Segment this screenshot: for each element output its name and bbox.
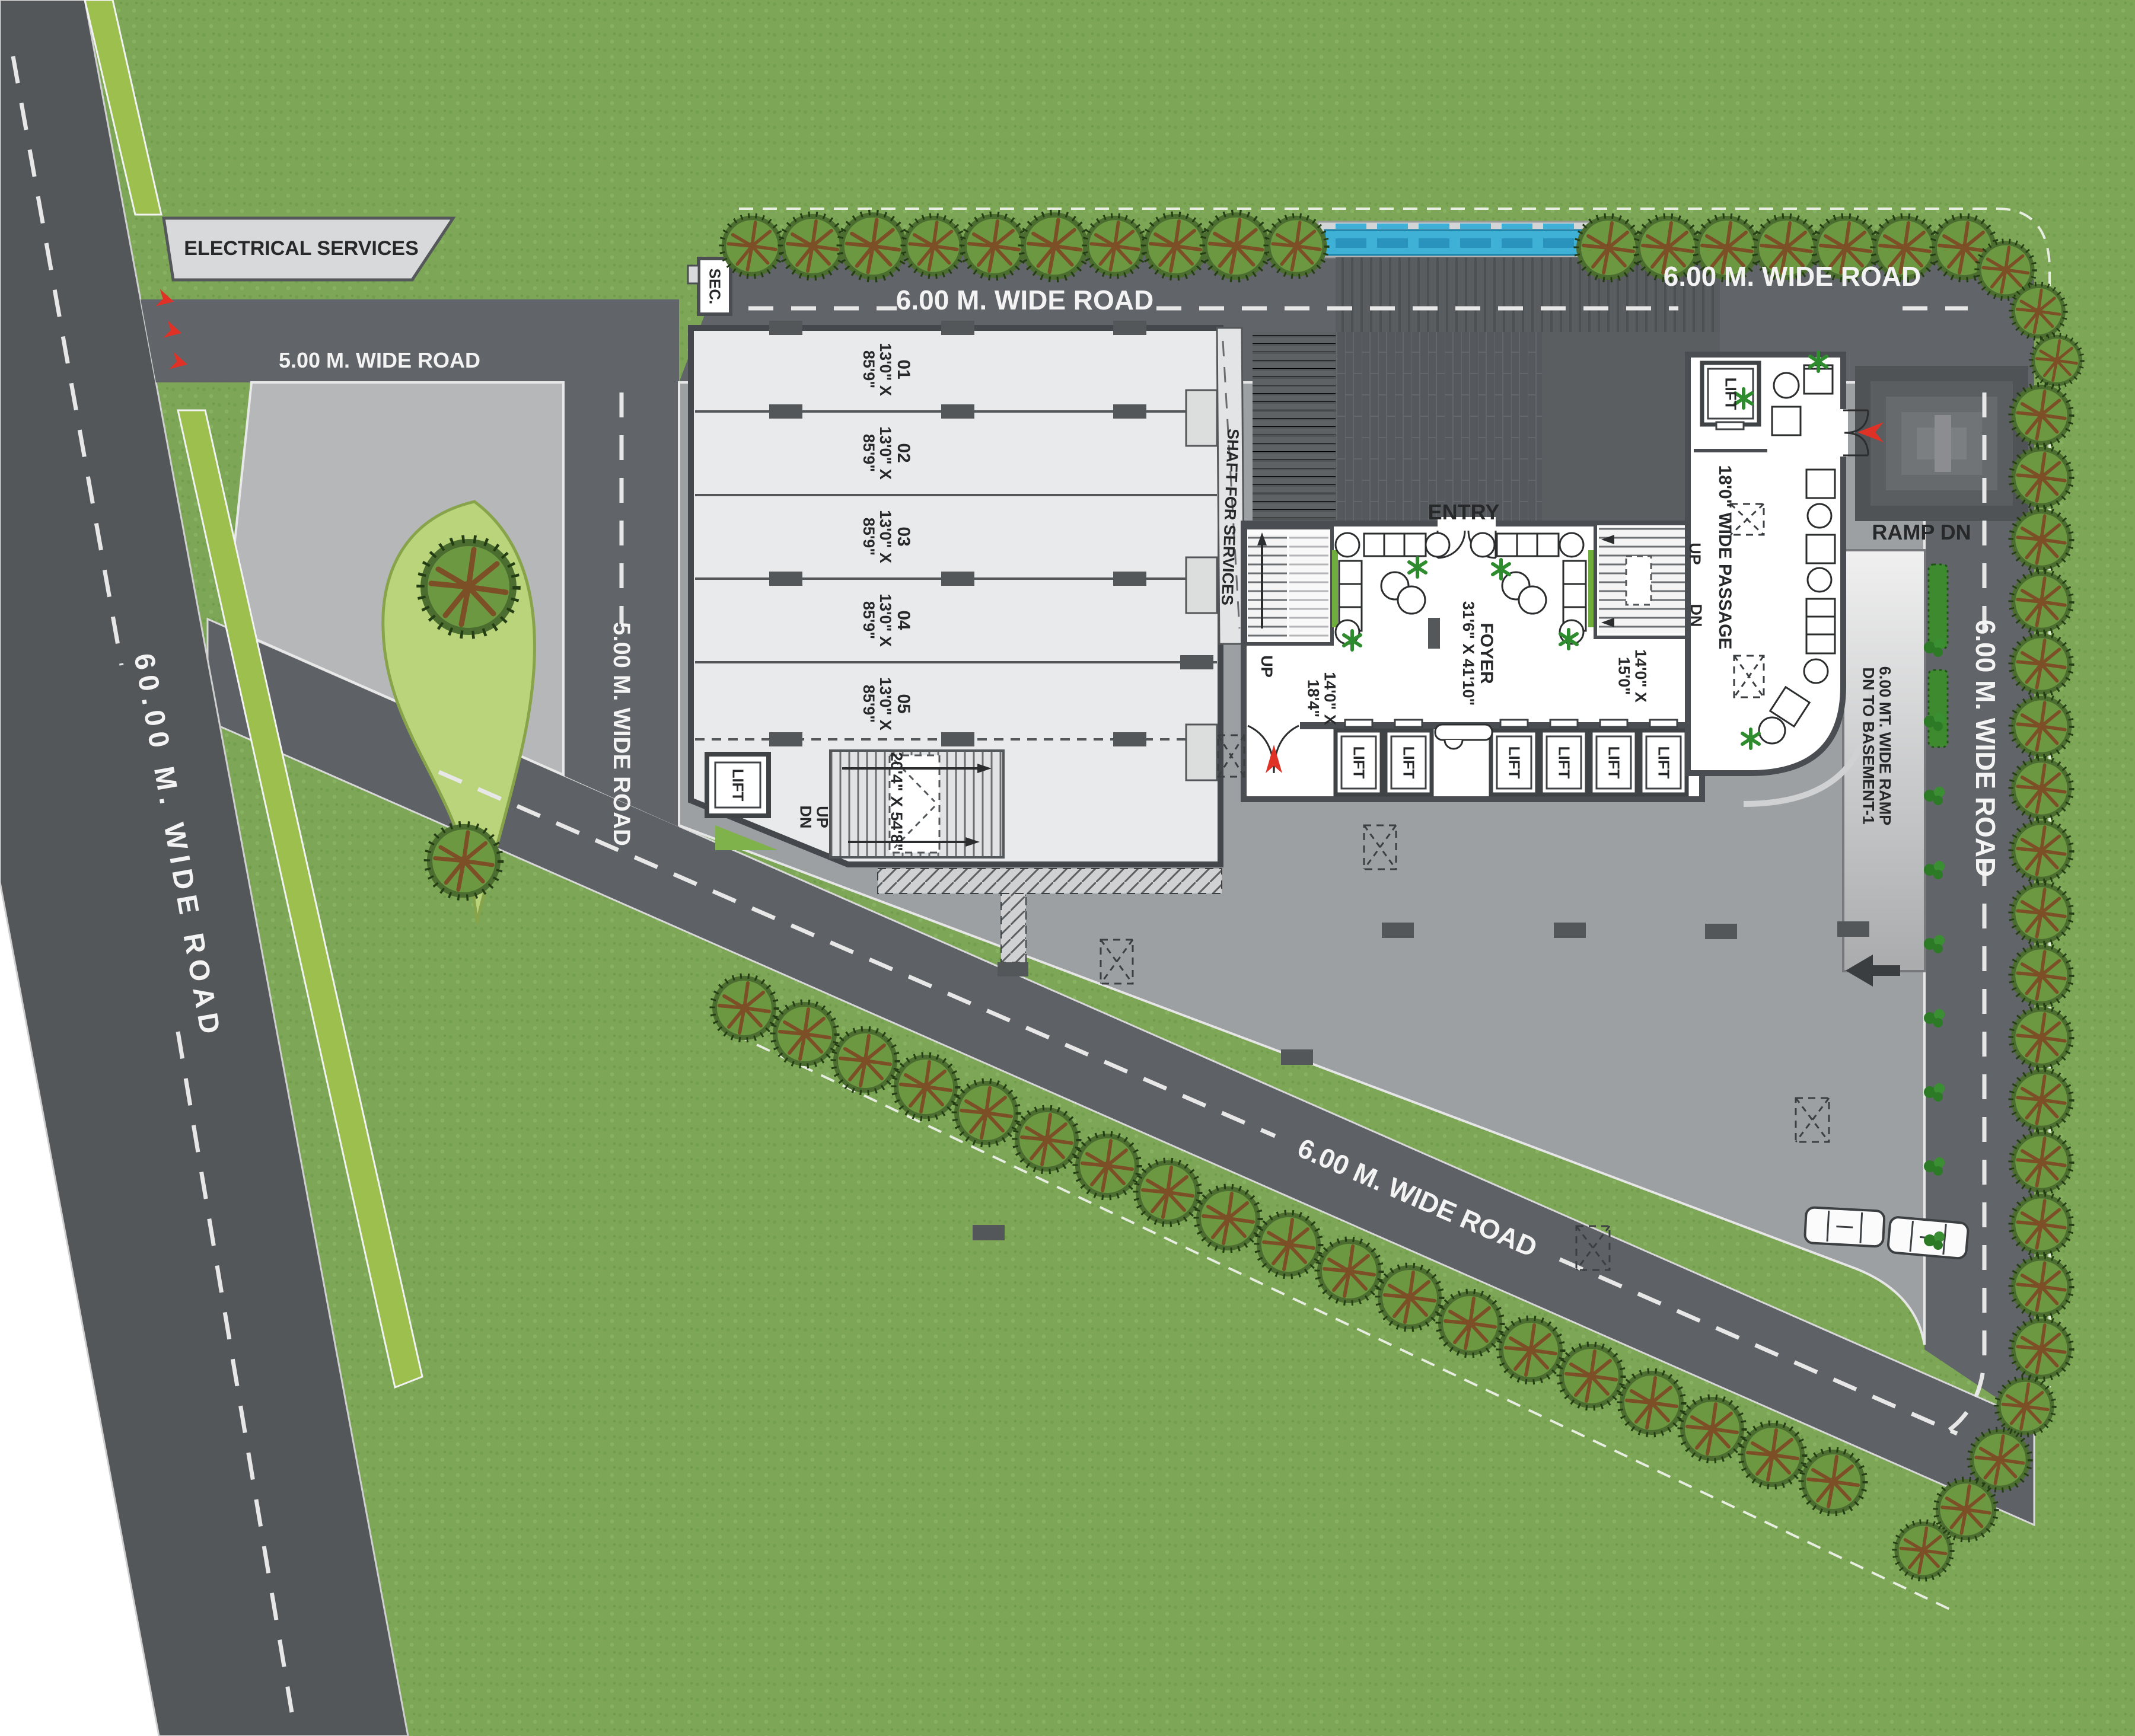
hall-size-label: 20'4" X 54'8" — [888, 752, 905, 851]
column-marker — [1837, 921, 1869, 937]
lift-label: LIFT — [1556, 746, 1572, 779]
column-marker — [973, 1225, 1005, 1240]
tree-icon — [712, 976, 776, 1040]
tree-icon — [1741, 1423, 1805, 1487]
unit-01-label: 0113'0" X85'9" — [861, 343, 913, 396]
tree-icon — [1257, 1212, 1321, 1277]
up-label-left-stair: UP — [1258, 655, 1275, 678]
tree-icon — [780, 214, 845, 278]
tree-icon — [1317, 1239, 1381, 1303]
tree-icon — [1996, 1377, 2054, 1435]
lift-label: LIFT — [1400, 746, 1416, 779]
road-label-5m-v: 5.00 M. WIDE ROAD — [609, 622, 634, 846]
tree-icon — [2011, 758, 2072, 819]
tree-icon — [2011, 634, 2072, 695]
road-label-6m-right: 6.00 M. WIDE ROAD — [1971, 620, 2000, 877]
building-stair-block — [707, 751, 1003, 857]
tree-icon — [1196, 1186, 1260, 1250]
tree-icon — [962, 214, 1026, 278]
lift-label: LIFT — [1605, 746, 1621, 779]
tree-icon — [1970, 1429, 2031, 1491]
ramp-spiral — [1855, 366, 2028, 521]
tree-icon — [839, 212, 906, 279]
column-marker — [1705, 924, 1737, 939]
tree-icon — [2011, 509, 2072, 570]
site-plan: 60.00 M. WIDE ROAD ELECTRICAL SERVICES 5… — [0, 0, 2135, 1736]
tree-icon — [2011, 284, 2066, 339]
tree-icon — [722, 216, 783, 277]
tree-icon — [2011, 1319, 2072, 1380]
tree-icon — [1136, 1160, 1200, 1224]
stair-lobby-right-label: 14'0" X15'0" — [1615, 649, 1649, 703]
tree-icon — [1499, 1318, 1563, 1382]
tree-icon — [773, 1002, 837, 1066]
tree-icon — [2011, 1070, 2072, 1131]
tree-icon — [1085, 216, 1146, 277]
lift-label: LIFT — [1350, 746, 1366, 779]
tree-icon — [1438, 1291, 1502, 1355]
column-marker — [1382, 923, 1414, 938]
tree-icon — [2011, 1007, 2072, 1068]
tree-icon — [1801, 1450, 1865, 1514]
tree-icon — [1378, 1265, 1442, 1329]
dn-label-right-stair: DN — [1688, 604, 1704, 627]
tree-icon — [427, 824, 501, 898]
tree-icon — [1680, 1397, 1744, 1461]
tree-icon — [1015, 1108, 1079, 1172]
kiosk — [1428, 618, 1440, 649]
tree-icon — [2011, 1194, 2072, 1255]
road-label-6m-top-right: 6.00 M. WIDE ROAD — [1664, 262, 1921, 291]
lift-label: LIFT — [1655, 746, 1671, 779]
foyer-label: FOYER31'6" X 41'10" — [1460, 601, 1496, 706]
unit-05-label: 0513'0" X85'9" — [861, 677, 913, 730]
tree-icon — [2011, 696, 2072, 757]
unit-02-label: 0213'0" X85'9" — [861, 426, 913, 480]
tree-icon — [2011, 821, 2072, 882]
tree-icon — [2031, 335, 2082, 386]
tree-icon — [1576, 216, 1640, 280]
tree-icon — [1894, 1521, 1952, 1579]
tree-icon — [2011, 1132, 2072, 1193]
road-label-5m-h: 5.00 M. WIDE ROAD — [279, 349, 480, 372]
water-feature — [1318, 222, 1589, 257]
lift-label: LIFT — [1722, 378, 1738, 410]
tree-icon — [954, 1081, 1018, 1145]
road-label-6m-top-left: 6.00 M. WIDE ROAD — [896, 286, 1154, 314]
stair-lobby-left-label: 14'0" X18'4" — [1305, 672, 1339, 725]
tree-icon — [1936, 1479, 1997, 1540]
lift-label: LIFT — [1506, 746, 1522, 779]
tree-icon — [1143, 214, 1207, 278]
electrical-services-label: ELECTRICAL SERVICES — [184, 238, 418, 260]
tree-icon — [2011, 385, 2072, 446]
tree-icon — [2011, 572, 2072, 633]
unit-04-label: 0413'0" X85'9" — [861, 593, 913, 647]
tree-icon — [1620, 1371, 1684, 1435]
tree-icon — [1559, 1344, 1623, 1408]
tree-icon — [903, 216, 964, 277]
basement-ramp-label: 6.00 MT. WIDE RAMPDN TO BASEMENT-1 — [1860, 666, 1894, 826]
unit-03-label: 0313'0" X85'9" — [861, 510, 913, 563]
tree-icon — [1021, 212, 1088, 279]
ramp-dn-label: RAMP DN — [1872, 521, 1971, 544]
tree-icon — [894, 1055, 958, 1119]
tree-icon — [1202, 212, 1269, 279]
security-label: SEC. — [706, 269, 722, 305]
tree-icon — [2011, 883, 2072, 944]
tree-icon — [1075, 1134, 1139, 1198]
tree-icon — [420, 539, 517, 635]
column-marker — [1281, 1049, 1313, 1065]
car-icon — [1805, 1207, 1885, 1247]
tree-icon — [2011, 945, 2072, 1006]
tree-icon — [2011, 1256, 2072, 1317]
tree-icon — [2011, 447, 2072, 508]
entry-label: ENTRY — [1428, 501, 1500, 524]
column-marker — [1554, 923, 1586, 938]
tree-icon — [1266, 216, 1327, 277]
tree-icon — [833, 1029, 897, 1093]
updn-label-building-stair: UPDN — [797, 806, 831, 829]
up-label-right-stair: UP — [1687, 542, 1703, 565]
passage-label: 18'0" WIDE PASSAGE — [1715, 465, 1734, 650]
lift-label: LIFT — [729, 769, 745, 802]
